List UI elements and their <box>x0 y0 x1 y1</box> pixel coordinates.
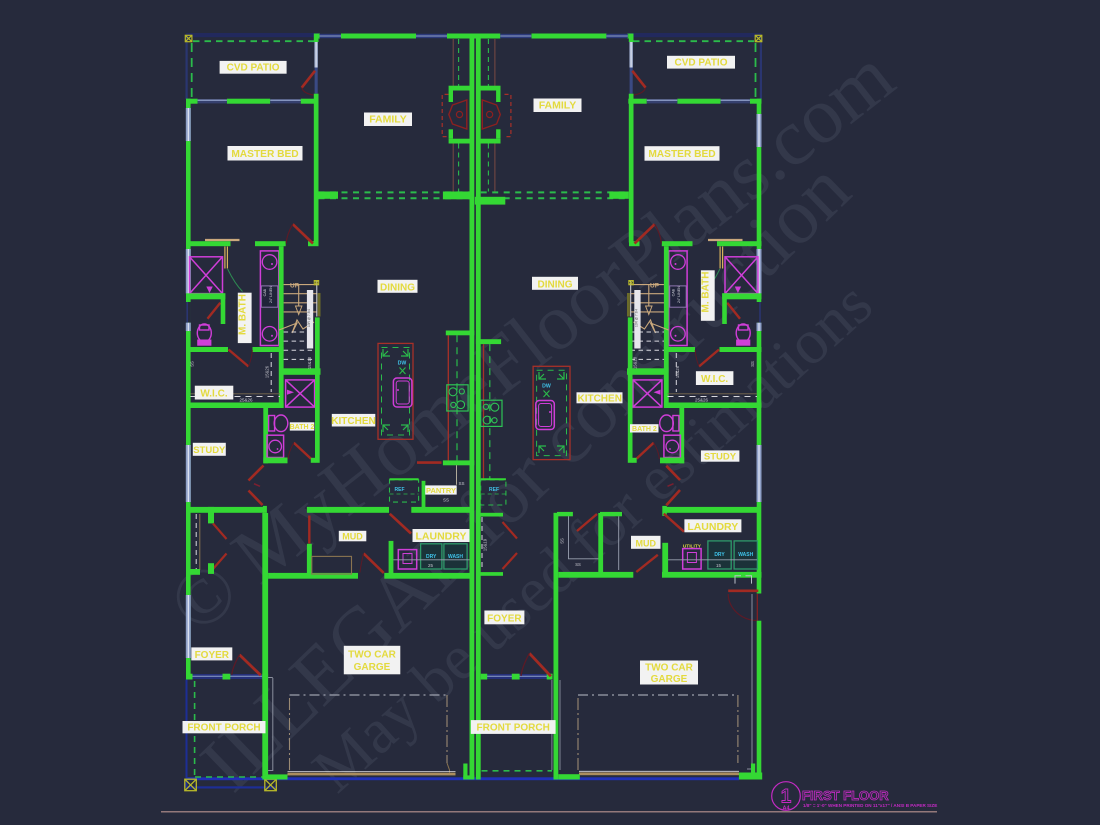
svg-text:FRONT PORCH: FRONT PORCH <box>477 723 550 734</box>
svg-text:MASTER BED: MASTER BED <box>231 149 298 160</box>
svg-text:M. BATH: M. BATH <box>238 294 249 335</box>
svg-text:15&26: 15&26 <box>675 365 680 378</box>
svg-text:WASH: WASH <box>738 552 753 558</box>
svg-text:25: 25 <box>428 563 434 568</box>
svg-text:DRY: DRY <box>426 554 437 560</box>
svg-text:TWO CAR: TWO CAR <box>348 650 397 661</box>
svg-text:DINING: DINING <box>538 279 573 290</box>
svg-text:STUDY: STUDY <box>193 445 226 456</box>
svg-text:PANTRY: PANTRY <box>426 486 456 495</box>
svg-text:FRONT PORCH: FRONT PORCH <box>187 723 260 734</box>
svg-text:WASH: WASH <box>448 554 463 560</box>
svg-text:DW: DW <box>542 384 551 390</box>
svg-text:CAB: CAB <box>263 288 267 296</box>
svg-text:GARGE: GARGE <box>651 674 688 685</box>
svg-text:25&26: 25&26 <box>239 398 253 403</box>
svg-text:FIRST FLOOR: FIRST FLOOR <box>802 788 889 803</box>
svg-text:DINING: DINING <box>380 282 415 293</box>
svg-text:13R @ 7 3/4: 13R @ 7 3/4 <box>634 309 638 327</box>
svg-text:W.I.C.: W.I.C. <box>200 389 227 400</box>
svg-text:UP: UP <box>650 283 660 290</box>
svg-text:FAMILY: FAMILY <box>539 100 577 112</box>
svg-text:KITCHEN: KITCHEN <box>331 416 375 427</box>
svg-text:1/8" = 1'-0" WHEN PRINTED ON 1: 1/8" = 1'-0" WHEN PRINTED ON 11"x17" / A… <box>803 803 937 808</box>
svg-text:FOYER: FOYER <box>195 650 230 661</box>
svg-text:LAUNDRY: LAUNDRY <box>416 531 467 543</box>
svg-text:MUD: MUD <box>636 538 657 548</box>
svg-text:STUDY: STUDY <box>704 452 737 463</box>
svg-text:BATH 2: BATH 2 <box>290 424 315 431</box>
svg-text:GARGE: GARGE <box>354 662 391 673</box>
svg-text:25&26: 25&26 <box>695 398 709 403</box>
svg-text:15&19: 15&19 <box>483 538 488 551</box>
svg-text:DW: DW <box>398 361 407 367</box>
svg-text:24" LINEN: 24" LINEN <box>269 286 273 303</box>
svg-text:M. BATH: M. BATH <box>701 272 712 313</box>
svg-text:15&26: 15&26 <box>265 365 270 378</box>
svg-text:SS: SS <box>560 538 565 544</box>
svg-text:SS: SS <box>458 481 464 486</box>
svg-text:TWO CAR: TWO CAR <box>645 663 694 674</box>
svg-text:REF: REF <box>489 487 499 493</box>
svg-text:W.I.C.: W.I.C. <box>701 374 728 385</box>
svg-text:KITCHEN: KITCHEN <box>577 393 621 404</box>
svg-text:MUD: MUD <box>342 531 363 541</box>
svg-text:15&18: 15&18 <box>307 356 312 369</box>
svg-text:15: 15 <box>716 563 722 568</box>
svg-text:13R @ 7 3/4: 13R @ 7 3/4 <box>307 309 311 327</box>
svg-text:BATH 2: BATH 2 <box>632 426 657 433</box>
svg-text:24" LINEN: 24" LINEN <box>677 286 681 303</box>
svg-text:CAB: CAB <box>672 288 676 296</box>
svg-text:SS: SS <box>190 361 195 367</box>
svg-text:FAMILY: FAMILY <box>369 114 407 126</box>
svg-text:DRY: DRY <box>714 552 725 558</box>
svg-text:MASTER BED: MASTER BED <box>648 149 715 160</box>
svg-text:FOYER: FOYER <box>487 613 522 624</box>
svg-text:SS: SS <box>443 498 449 503</box>
svg-text:SS: SS <box>750 361 755 367</box>
svg-text:LAUNDRY: LAUNDRY <box>687 521 738 533</box>
svg-text:CVD PATIO: CVD PATIO <box>675 58 728 69</box>
svg-text:A4: A4 <box>782 806 790 812</box>
svg-text:REF: REF <box>395 487 405 493</box>
svg-text:1: 1 <box>781 787 792 808</box>
svg-text:SS: SS <box>575 562 581 567</box>
svg-text:CVD PATIO: CVD PATIO <box>227 63 280 74</box>
svg-text:UP: UP <box>290 283 300 290</box>
svg-text:15&18: 15&18 <box>633 356 638 369</box>
